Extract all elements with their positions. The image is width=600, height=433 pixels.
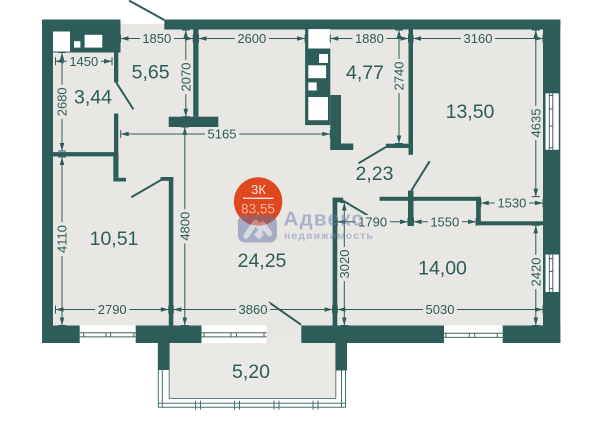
svg-text:недвижимость: недвижимость xyxy=(284,231,374,242)
svg-text:3160: 3160 xyxy=(464,31,493,46)
svg-text:2,23: 2,23 xyxy=(356,163,394,185)
svg-text:1850: 1850 xyxy=(142,31,171,46)
svg-text:5,65: 5,65 xyxy=(132,62,170,84)
svg-text:5030: 5030 xyxy=(426,302,455,317)
svg-text:1530: 1530 xyxy=(497,196,526,211)
svg-text:2790: 2790 xyxy=(98,302,127,317)
svg-text:83,55: 83,55 xyxy=(241,201,275,216)
svg-text:2600: 2600 xyxy=(237,31,266,46)
svg-text:3,44: 3,44 xyxy=(74,87,112,109)
svg-text:13,50: 13,50 xyxy=(446,101,495,123)
svg-text:10,51: 10,51 xyxy=(90,228,139,250)
svg-text:3860: 3860 xyxy=(239,302,268,317)
svg-text:4635: 4635 xyxy=(528,109,543,138)
svg-text:4110: 4110 xyxy=(55,225,70,253)
svg-text:4,77: 4,77 xyxy=(346,62,384,84)
svg-text:5,20: 5,20 xyxy=(232,361,270,383)
svg-text:24,25: 24,25 xyxy=(238,250,287,272)
svg-text:1550: 1550 xyxy=(430,214,459,229)
svg-text:3К: 3К xyxy=(251,182,266,197)
svg-text:2070: 2070 xyxy=(178,63,193,92)
svg-text:14,00: 14,00 xyxy=(418,258,467,280)
svg-text:Адвекс: Адвекс xyxy=(284,207,365,230)
svg-text:2740: 2740 xyxy=(392,62,407,91)
svg-text:1450: 1450 xyxy=(69,54,98,69)
svg-text:5165: 5165 xyxy=(208,127,237,142)
svg-text:2680: 2680 xyxy=(55,87,70,116)
svg-text:4800: 4800 xyxy=(177,212,192,241)
svg-text:2420: 2420 xyxy=(528,258,543,287)
svg-text:1880: 1880 xyxy=(355,31,384,46)
svg-text:3020: 3020 xyxy=(337,250,352,279)
